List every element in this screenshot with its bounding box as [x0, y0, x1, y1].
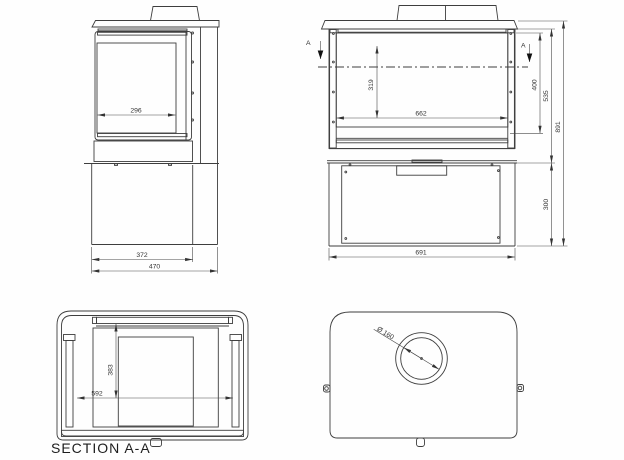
side-glass-window: [97, 43, 176, 133]
section-inner-wall: [62, 316, 244, 437]
dim-upper-height: 535: [543, 90, 550, 102]
dim-flue-diameter: Ø 160: [375, 326, 395, 342]
top-view-dimensions: Ø 160: [374, 326, 440, 370]
dim-overall-width: 691: [415, 249, 427, 256]
dim-section-inner-width: 592: [91, 390, 103, 397]
side-door-frame: [95, 32, 192, 141]
front-view-dimensions: A A 319 662 400 535 300 891: [306, 21, 568, 261]
front-glass-section: [97, 317, 229, 323]
dim-inner-height: 319: [368, 79, 375, 91]
vent-grate-panel: [118, 337, 193, 426]
dim-overall-height: 891: [555, 121, 562, 133]
side-ash-lip: [94, 141, 193, 162]
dim-base-height: 300: [543, 199, 550, 211]
flue-collar-side: [151, 7, 200, 21]
technical-drawing-canvas: 296 372 470: [0, 0, 624, 460]
stove-technical-drawing: 296 372 470: [0, 0, 624, 460]
firebox-front: [329, 29, 515, 149]
side-view-dimensions: 296 372 470: [92, 108, 218, 274]
dim-window-width: 296: [130, 108, 142, 115]
firebox-liner-section: [93, 328, 218, 427]
pedestal-drawer-front: [342, 166, 500, 243]
dim-overall-depth: 470: [149, 264, 161, 271]
drawer-handle-notch: [397, 166, 447, 175]
dim-opening-height: 400: [532, 79, 539, 91]
section-label: SECTION A-A: [51, 440, 151, 456]
flue-shield-front: [397, 6, 498, 21]
dim-section-depth: 383: [108, 364, 115, 376]
section-outer-wall: [57, 311, 248, 440]
front-view: [318, 6, 528, 247]
left-glass-section: [66, 341, 73, 428]
bottom-tab: [417, 438, 425, 447]
section-aa-dimensions: 383 592: [77, 324, 233, 398]
dim-inner-width: 662: [415, 110, 427, 117]
section-aa-view: [57, 311, 248, 447]
section-marker-left: A: [306, 40, 311, 47]
top-plate-side: [92, 21, 219, 28]
dim-base-depth: 372: [136, 252, 148, 259]
top-view: [324, 312, 524, 447]
top-plate-outline: [330, 312, 517, 438]
right-glass-section: [232, 341, 239, 428]
side-view: [84, 7, 219, 245]
section-marker-right: A: [521, 43, 526, 50]
top-plate-front: [322, 21, 518, 30]
